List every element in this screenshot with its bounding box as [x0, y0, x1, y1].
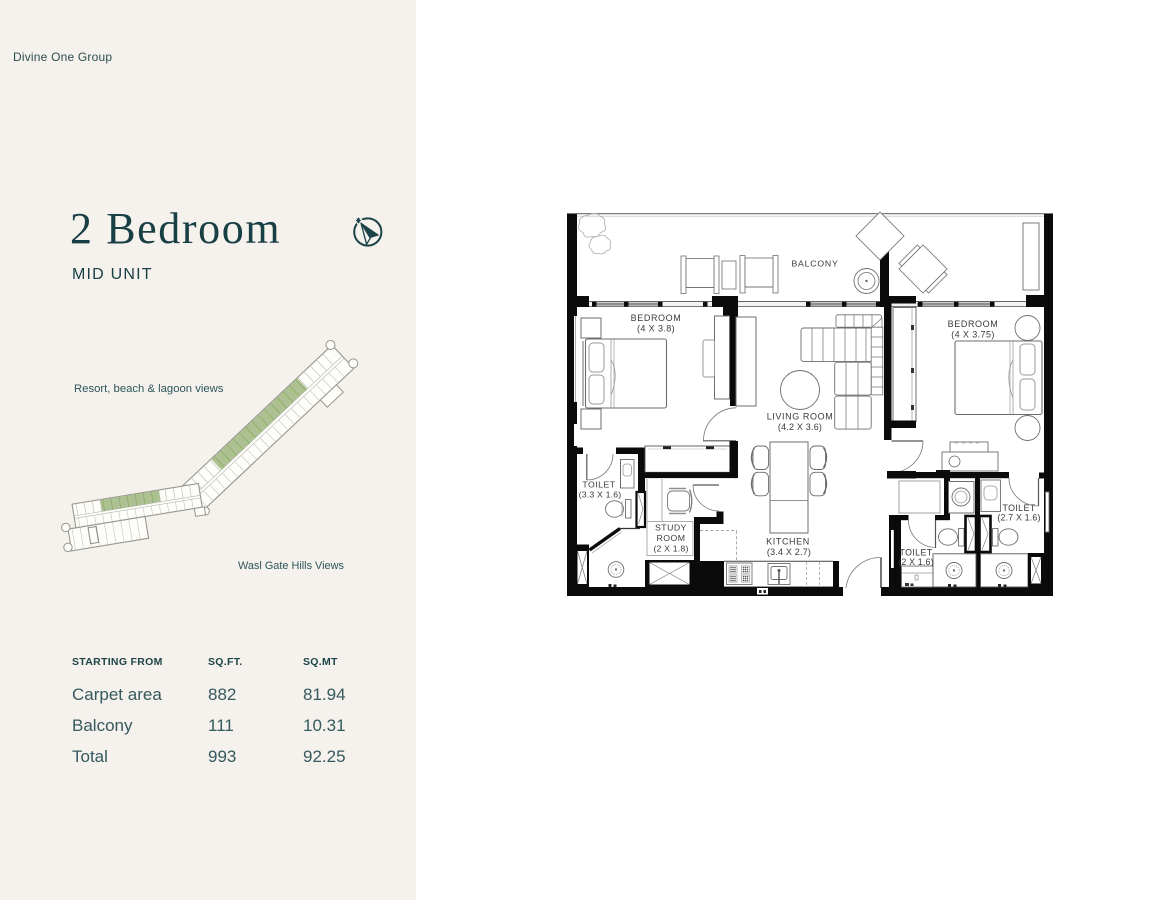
- svg-text:TOILET: TOILET: [1002, 503, 1035, 513]
- svg-text:(3.3 X 1.6): (3.3 X 1.6): [579, 490, 622, 500]
- svg-text:ROOM: ROOM: [656, 533, 685, 543]
- svg-text:LIVING ROOM: LIVING ROOM: [767, 412, 834, 422]
- svg-text:(4 X 3.75): (4 X 3.75): [951, 330, 995, 340]
- svg-text:TOILET: TOILET: [582, 480, 615, 490]
- svg-text:(4 X 3.8): (4 X 3.8): [637, 324, 675, 334]
- svg-text:(4.2 X 3.6): (4.2 X 3.6): [778, 422, 822, 432]
- svg-text:(2 X 1.6): (2 X 1.6): [898, 557, 934, 567]
- svg-text:KITCHEN: KITCHEN: [766, 537, 810, 547]
- svg-text:(2 X 1.8): (2 X 1.8): [653, 544, 688, 554]
- svg-text:(3.4 X 2.7): (3.4 X 2.7): [767, 547, 811, 557]
- svg-text:(2.7 X 1.6): (2.7 X 1.6): [997, 513, 1040, 523]
- svg-text:TOILET: TOILET: [899, 548, 932, 558]
- svg-text:BEDROOM: BEDROOM: [948, 319, 999, 329]
- svg-text:STUDY: STUDY: [655, 523, 687, 533]
- svg-text:BALCONY: BALCONY: [791, 259, 838, 269]
- svg-text:BEDROOM: BEDROOM: [631, 313, 682, 323]
